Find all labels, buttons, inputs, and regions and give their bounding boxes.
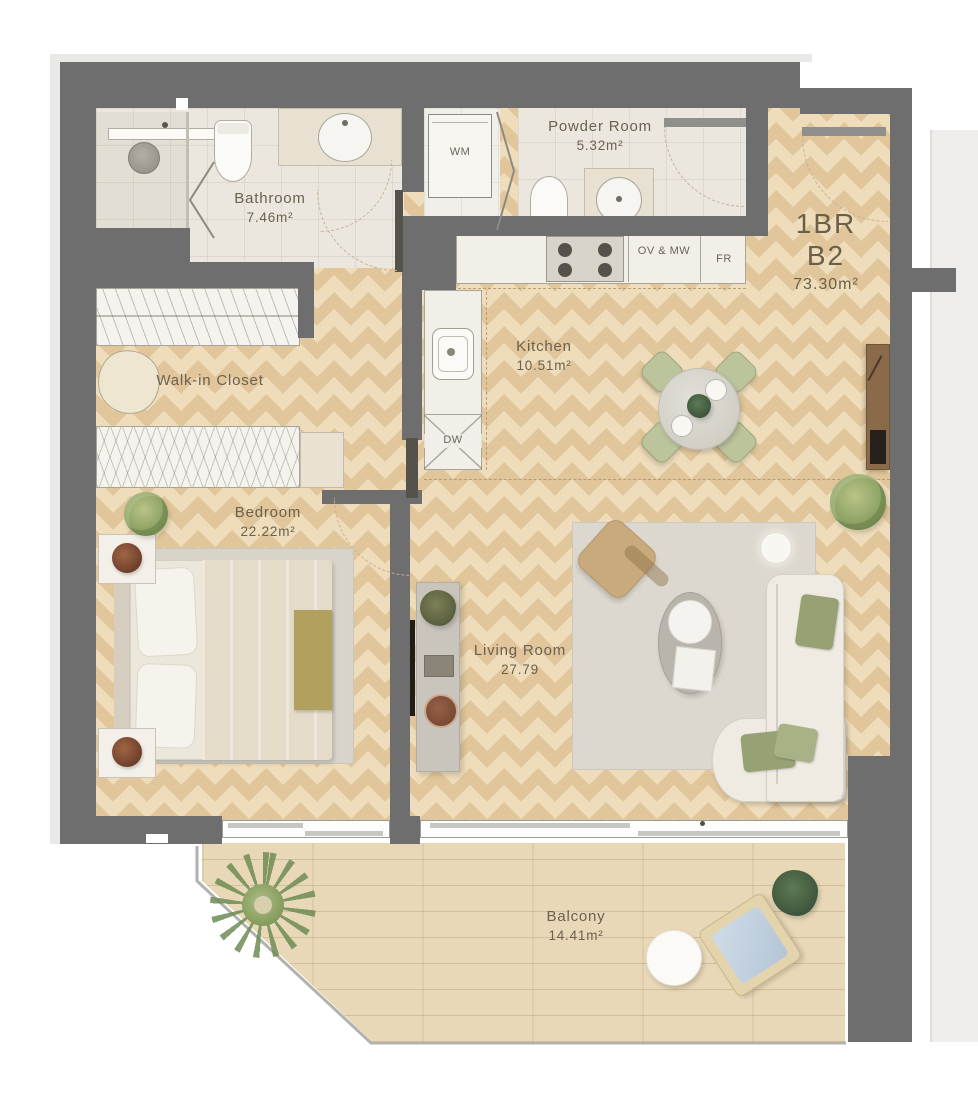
fridge-label: FR	[702, 253, 746, 267]
label-bedroom: Bedroom 22.22m²	[198, 502, 338, 542]
powder-door-leaf	[664, 118, 746, 127]
tv-console-tray	[424, 694, 458, 728]
bathroom-area: 7.46m²	[195, 209, 345, 228]
unit-variant: B2	[756, 240, 896, 272]
wall-under-powder	[456, 216, 768, 236]
floor-plan: WM OV & MW FR DW	[0, 0, 978, 1100]
wall-top	[60, 62, 800, 108]
living-room-area: 27.79	[450, 661, 590, 680]
label-unit: 1BR B2 73.30m²	[756, 208, 896, 294]
entrance-door-leaf	[802, 127, 886, 136]
kitchen-counter-dashed-line	[486, 292, 487, 470]
balcony-table	[646, 930, 702, 986]
slider-handle-dot	[700, 821, 705, 826]
kitchen-area: 10.51m²	[474, 357, 614, 376]
dishwasher-label: DW	[424, 434, 482, 448]
hob-burner	[558, 263, 572, 277]
floor-lamp	[760, 532, 792, 564]
powder-room-area: 5.32m²	[530, 137, 670, 156]
bedroom-corner-plant	[124, 492, 168, 536]
wall-closet-top	[60, 262, 314, 288]
living-slider-panel	[638, 831, 840, 836]
coffee-table-tray	[668, 600, 712, 644]
shower-head	[128, 142, 160, 174]
shower-bar	[108, 128, 226, 140]
wall-bedroom-bottom	[60, 816, 222, 844]
wall-closet-kitchen	[402, 290, 422, 440]
bedroom-area: 22.22m²	[198, 523, 338, 542]
wall-bathroom-right	[402, 108, 424, 192]
tv-console-plant	[420, 590, 456, 626]
kitchen-counter-dashed-top	[458, 288, 746, 289]
unit-total-area: 73.30m²	[756, 276, 896, 294]
label-balcony: Balcony 14.41m²	[506, 906, 646, 946]
hob-burner	[558, 243, 572, 257]
powder-room-name: Powder Room	[548, 118, 652, 135]
label-walk-in-closet: Walk-in Closet	[135, 370, 285, 391]
closet-wardrobe-bottom	[96, 426, 300, 488]
label-kitchen: Kitchen 10.51m²	[474, 336, 614, 376]
nightstand-plant-pot	[112, 737, 142, 767]
unit-type: 1BR	[756, 208, 896, 240]
kitchen-name: Kitchen	[516, 338, 572, 355]
balcony-palm-core	[254, 896, 272, 914]
bathroom-toilet-tank	[217, 123, 249, 134]
closet-shelf-extension	[300, 432, 344, 488]
closet-wardrobe-rail	[96, 315, 300, 317]
sofa-pillow	[795, 594, 840, 651]
wall-right-mid	[890, 286, 912, 756]
building-halo-top	[50, 54, 812, 62]
counter-divider	[628, 236, 629, 282]
bedroom-slider-panel	[305, 831, 383, 836]
bed-runner	[294, 610, 332, 710]
wall-joint-notch	[146, 834, 168, 843]
hob-burner	[598, 243, 612, 257]
oven-microwave-label: OV & MW	[632, 245, 696, 259]
label-living-room: Living Room 27.79	[450, 640, 590, 680]
bathroom-faucet-dot	[342, 120, 348, 126]
dining-plate	[671, 415, 693, 437]
balcony-name: Balcony	[547, 908, 606, 925]
label-powder-room: Powder Room 5.32m²	[530, 116, 670, 156]
hallway-plant	[830, 474, 886, 530]
kitchen-zone-dashed-line	[424, 479, 890, 480]
wall-kitchen-corner	[402, 216, 456, 290]
wall-joint-notch	[176, 98, 188, 110]
wall-bottom-right-block	[848, 756, 912, 1042]
wall-closet-stub	[298, 262, 314, 338]
wall-divider-bottom-chunk	[390, 816, 420, 844]
kitchen-faucet-dot	[447, 348, 455, 356]
closet-wardrobe-top	[96, 288, 300, 346]
shower-divider	[186, 112, 189, 230]
balcony-area: 14.41m²	[506, 927, 646, 946]
living-slider-panel	[430, 823, 630, 828]
washing-machine-door-line	[432, 122, 488, 123]
wall-left	[60, 62, 96, 844]
dining-centerpiece-plant	[687, 394, 711, 418]
bedroom-name: Bedroom	[235, 504, 301, 521]
walk-in-closet-name: Walk-in Closet	[156, 372, 263, 389]
counter-divider	[700, 236, 701, 282]
building-halo-left	[50, 54, 60, 844]
balcony-plant	[772, 870, 818, 916]
shower-valve-dot	[162, 122, 168, 128]
washing-machine-label: WM	[428, 146, 492, 160]
nightstand-plant-pot	[112, 543, 142, 573]
powder-faucet-dot	[616, 196, 622, 202]
sofa-pillow	[773, 723, 818, 763]
coffee-table-magazine	[672, 646, 716, 692]
bedroom-slider-panel	[228, 823, 303, 828]
label-bathroom: Bathroom 7.46m²	[195, 188, 345, 228]
bedroom-door-leaf	[406, 438, 418, 498]
living-room-name: Living Room	[474, 642, 566, 659]
entry-console-item	[870, 430, 886, 464]
hob	[546, 236, 624, 282]
adjacent-corridor-band	[930, 130, 978, 1042]
bathroom-name: Bathroom	[234, 190, 305, 207]
hob-burner	[598, 263, 612, 277]
